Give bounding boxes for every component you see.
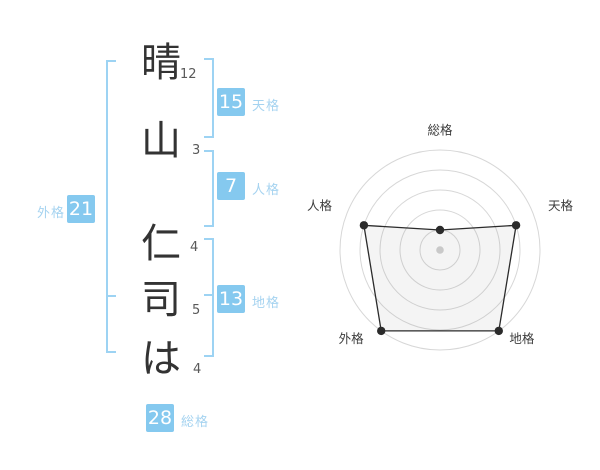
stroke-count-5: 4 — [193, 362, 201, 377]
gaikaku-label: 外格 — [37, 202, 65, 221]
chikaku-bracket-tick-bottom — [204, 355, 214, 357]
radar-data-point-2 — [512, 221, 520, 229]
radar-axis-label-5: 人格 — [307, 198, 333, 213]
tenkaku-bracket-tick-top — [204, 58, 214, 60]
name-character-4: 司 — [132, 279, 190, 321]
radar-axis-label-2: 天格 — [548, 198, 574, 213]
soukaku-value-box: 28 — [146, 404, 174, 432]
gaikaku-bracket-tick-mid — [106, 295, 116, 297]
tenkaku-bracket-tick-bottom — [204, 136, 214, 138]
jinkaku-bracket-tick-top — [204, 150, 214, 152]
radar-data-point-1 — [436, 226, 444, 234]
radar-axis-label-4: 外格 — [339, 331, 365, 346]
stroke-count-3: 4 — [190, 240, 198, 255]
jinkaku-bracket-line — [212, 150, 214, 227]
tenkaku-bracket-line — [212, 58, 214, 138]
gaikaku-bracket-tick-bottom — [106, 351, 116, 353]
radar-axis-label-3: 地格 — [509, 331, 535, 346]
chikaku-bracket-tick-mid — [204, 294, 214, 296]
radar-center-dot — [436, 246, 444, 254]
stroke-count-4: 5 — [192, 303, 200, 318]
gaikaku-bracket-line — [106, 60, 108, 353]
name-character-2: 山 — [132, 120, 190, 162]
radar-data-point-4 — [377, 327, 385, 335]
chikaku-label: 地格 — [252, 292, 280, 311]
stroke-count-1: 12 — [180, 67, 197, 82]
chikaku-value-box: 13 — [217, 285, 245, 313]
radar-data-point-5 — [360, 221, 368, 229]
gaikaku-value-box: 21 — [67, 195, 95, 223]
radar-chart: 総格天格地格外格人格 — [290, 110, 590, 360]
tenkaku-value-box: 15 — [217, 88, 245, 116]
gaikaku-bracket-tick-top — [106, 60, 116, 62]
name-character-3: 仁 — [132, 223, 190, 265]
name-character-5: は — [132, 338, 190, 380]
jinkaku-bracket-tick-bottom — [204, 225, 214, 227]
jinkaku-value-box: 7 — [217, 172, 245, 200]
tenkaku-label: 天格 — [252, 95, 280, 114]
stroke-count-2: 3 — [192, 143, 200, 158]
radar-data-polygon — [364, 225, 516, 331]
radar-axis-label-1: 総格 — [427, 123, 453, 138]
soukaku-label: 総格 — [181, 411, 209, 430]
radar-data-point-3 — [495, 327, 503, 335]
chikaku-bracket-line — [212, 238, 214, 357]
jinkaku-label: 人格 — [252, 179, 280, 198]
chikaku-bracket-tick-top — [204, 238, 214, 240]
